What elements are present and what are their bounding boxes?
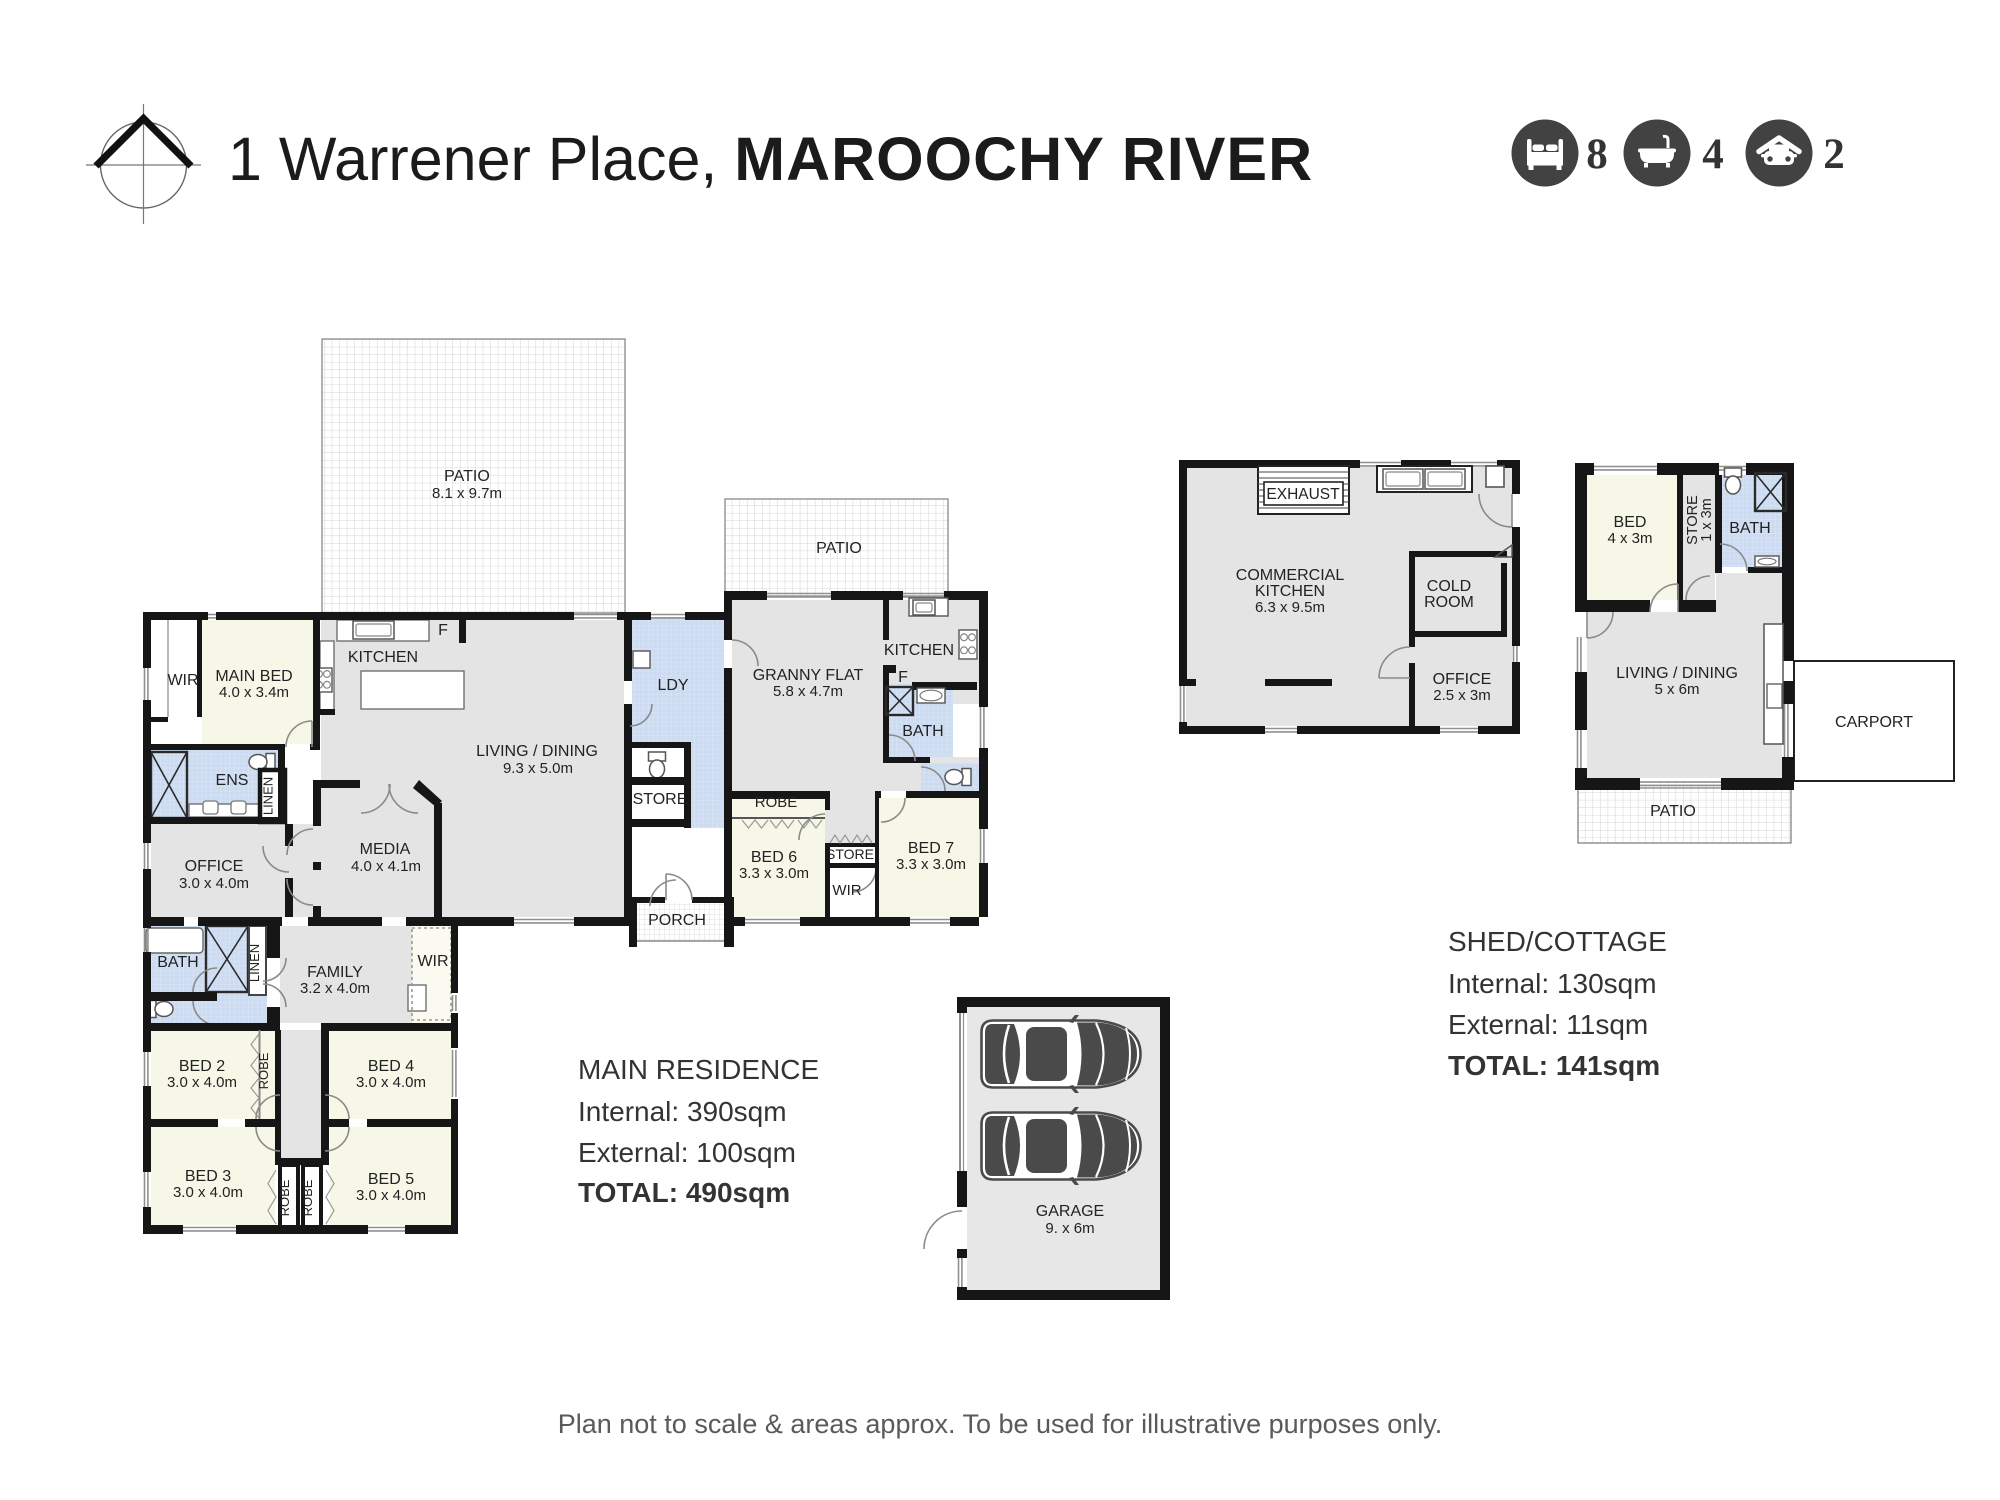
svg-text:Internal: 390sqm: Internal: 390sqm (578, 1096, 787, 1127)
svg-text:GRANNY FLAT: GRANNY FLAT (753, 667, 864, 684)
svg-text:Plan not to scale & areas appr: Plan not to scale & areas approx. To be … (558, 1409, 1443, 1439)
svg-text:BATH: BATH (902, 723, 943, 740)
svg-text:1 x 3m: 1 x 3m (1699, 498, 1715, 542)
svg-text:3.0 x 4.0m: 3.0 x 4.0m (167, 1074, 237, 1091)
svg-text:F: F (898, 669, 908, 686)
svg-text:3.0 x 4.0m: 3.0 x 4.0m (179, 875, 249, 892)
svg-text:ROBE: ROBE (755, 794, 798, 811)
svg-text:ROOM: ROOM (1424, 594, 1474, 611)
svg-text:3.0 x 4.0m: 3.0 x 4.0m (173, 1184, 243, 1201)
svg-text:Internal: 130sqm: Internal: 130sqm (1448, 968, 1657, 999)
svg-text:STORE: STORE (826, 846, 874, 862)
svg-text:OFFICE: OFFICE (1433, 671, 1492, 688)
svg-text:3.0 x 4.0m: 3.0 x 4.0m (356, 1074, 426, 1091)
svg-text:F: F (438, 622, 448, 639)
svg-text:BED 4: BED 4 (368, 1058, 414, 1075)
svg-text:BED: BED (1614, 514, 1647, 531)
svg-text:4: 4 (1702, 131, 1724, 178)
svg-text:LINEN: LINEN (247, 944, 262, 982)
svg-text:ROBE: ROBE (277, 1179, 292, 1216)
svg-text:OFFICE: OFFICE (185, 858, 244, 875)
svg-text:TOTAL: 490sqm: TOTAL: 490sqm (578, 1177, 790, 1208)
svg-text:CARPORT: CARPORT (1835, 714, 1913, 731)
svg-text:BED 5: BED 5 (368, 1171, 414, 1188)
svg-text:PATIO: PATIO (444, 468, 490, 485)
svg-text:GARAGE: GARAGE (1036, 1203, 1104, 1220)
svg-text:MAIN RESIDENCE: MAIN RESIDENCE (578, 1054, 819, 1085)
svg-text:LDY: LDY (657, 677, 688, 694)
svg-text:BATH: BATH (1729, 520, 1770, 537)
svg-text:8: 8 (1586, 131, 1608, 178)
svg-text:1 Warrener Place, MAROOCHY RIV: 1 Warrener Place, MAROOCHY RIVER (228, 125, 1313, 193)
svg-text:2.5 x 3m: 2.5 x 3m (1433, 687, 1491, 704)
svg-text:WIR: WIR (167, 672, 198, 689)
svg-text:External: 11sqm: External: 11sqm (1448, 1009, 1648, 1040)
svg-text:WIR: WIR (832, 882, 861, 899)
svg-text:MEDIA: MEDIA (360, 841, 411, 858)
svg-text:9. x 6m: 9. x 6m (1045, 1220, 1094, 1237)
svg-text:2: 2 (1823, 131, 1845, 178)
svg-text:5.8 x 4.7m: 5.8 x 4.7m (773, 683, 843, 700)
svg-text:KITCHEN: KITCHEN (884, 642, 954, 659)
svg-text:MAIN BED: MAIN BED (215, 668, 292, 685)
svg-text:PATIO: PATIO (1650, 803, 1696, 820)
svg-text:5 x 6m: 5 x 6m (1654, 681, 1699, 698)
svg-text:4.0 x 3.4m: 4.0 x 3.4m (219, 684, 289, 701)
svg-text:KITCHEN: KITCHEN (1255, 583, 1325, 600)
svg-text:External: 100sqm: External: 100sqm (578, 1137, 796, 1168)
svg-text:ROBE: ROBE (300, 1179, 315, 1216)
svg-text:3.0 x 4.0m: 3.0 x 4.0m (356, 1187, 426, 1204)
svg-text:EXHAUST: EXHAUST (1266, 486, 1340, 503)
svg-text:3.3 x 3.0m: 3.3 x 3.0m (739, 865, 809, 882)
svg-text:BED 2: BED 2 (179, 1058, 225, 1075)
svg-text:3.3 x 3.0m: 3.3 x 3.0m (896, 856, 966, 873)
svg-text:8.1 x 9.7m: 8.1 x 9.7m (432, 485, 502, 502)
svg-text:ROBE: ROBE (256, 1052, 271, 1089)
svg-text:BED 6: BED 6 (751, 849, 797, 866)
svg-text:BED 3: BED 3 (185, 1168, 231, 1185)
svg-text:WIR: WIR (417, 953, 448, 970)
svg-text:PORCH: PORCH (648, 912, 706, 929)
svg-text:BATH: BATH (157, 954, 198, 971)
svg-text:KITCHEN: KITCHEN (348, 649, 418, 666)
svg-text:ENS: ENS (216, 772, 249, 789)
svg-text:COLD: COLD (1427, 578, 1471, 595)
svg-text:4 x 3m: 4 x 3m (1607, 530, 1652, 547)
svg-text:LINEN: LINEN (261, 777, 276, 815)
svg-text:TOTAL: 141sqm: TOTAL: 141sqm (1448, 1050, 1660, 1081)
svg-text:4.0 x 4.1m: 4.0 x 4.1m (351, 858, 421, 875)
svg-text:3.2 x 4.0m: 3.2 x 4.0m (300, 980, 370, 997)
svg-text:BED 7: BED 7 (908, 840, 954, 857)
svg-text:COMMERCIAL: COMMERCIAL (1236, 567, 1345, 584)
svg-text:STORE: STORE (633, 791, 688, 808)
svg-text:9.3 x 5.0m: 9.3 x 5.0m (503, 760, 573, 777)
svg-text:FAMILY: FAMILY (307, 964, 363, 981)
svg-text:SHED/COTTAGE: SHED/COTTAGE (1448, 926, 1667, 957)
svg-text:PATIO: PATIO (816, 540, 862, 557)
svg-text:LIVING / DINING: LIVING / DINING (476, 743, 598, 760)
svg-text:6.3 x 9.5m: 6.3 x 9.5m (1255, 599, 1325, 616)
svg-text:LIVING / DINING: LIVING / DINING (1616, 665, 1738, 682)
